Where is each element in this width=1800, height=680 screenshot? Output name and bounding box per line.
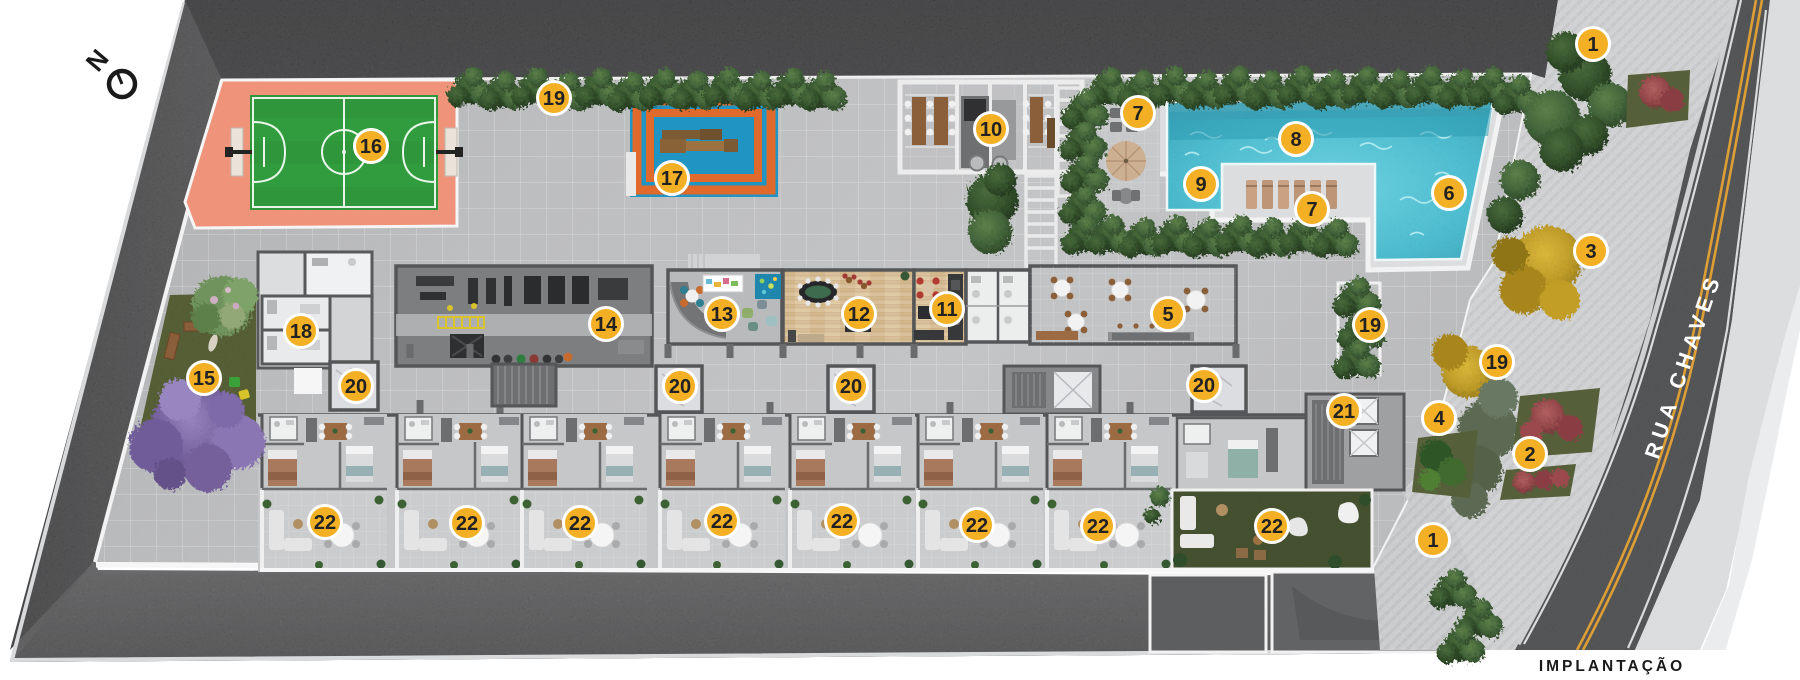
svg-text:22: 22 (1261, 516, 1283, 538)
svg-text:7: 7 (1132, 103, 1143, 125)
svg-text:1: 1 (1427, 530, 1438, 552)
svg-text:22: 22 (831, 511, 853, 533)
svg-text:9: 9 (1195, 174, 1206, 196)
svg-text:5: 5 (1162, 304, 1173, 326)
svg-text:22: 22 (966, 515, 988, 537)
svg-text:6: 6 (1443, 183, 1454, 205)
svg-text:IMPLANTAÇÃO: IMPLANTAÇÃO (1539, 657, 1685, 675)
svg-text:20: 20 (345, 376, 367, 398)
svg-text:18: 18 (290, 321, 312, 343)
svg-text:11: 11 (936, 299, 957, 321)
svg-text:12: 12 (848, 304, 870, 326)
svg-text:22: 22 (711, 511, 733, 533)
svg-text:13: 13 (711, 304, 733, 326)
svg-text:21: 21 (1333, 401, 1355, 423)
svg-text:2: 2 (1524, 444, 1535, 466)
svg-text:20: 20 (1193, 375, 1215, 397)
svg-text:19: 19 (1359, 315, 1381, 337)
svg-text:19: 19 (1486, 352, 1508, 374)
svg-text:8: 8 (1290, 129, 1301, 151)
svg-text:22: 22 (1087, 516, 1109, 538)
svg-text:15: 15 (193, 368, 215, 390)
svg-text:1: 1 (1587, 34, 1598, 56)
svg-text:17: 17 (661, 168, 683, 190)
svg-text:22: 22 (314, 512, 336, 534)
svg-text:10: 10 (980, 119, 1002, 141)
svg-text:14: 14 (595, 314, 618, 336)
svg-text:22: 22 (569, 513, 591, 535)
svg-text:20: 20 (669, 376, 691, 398)
svg-text:20: 20 (840, 376, 862, 398)
svg-text:3: 3 (1585, 241, 1596, 263)
svg-text:19: 19 (543, 88, 565, 110)
svg-text:4: 4 (1433, 408, 1445, 430)
svg-text:7: 7 (1306, 199, 1317, 221)
svg-text:16: 16 (360, 136, 382, 158)
svg-text:22: 22 (456, 513, 478, 535)
